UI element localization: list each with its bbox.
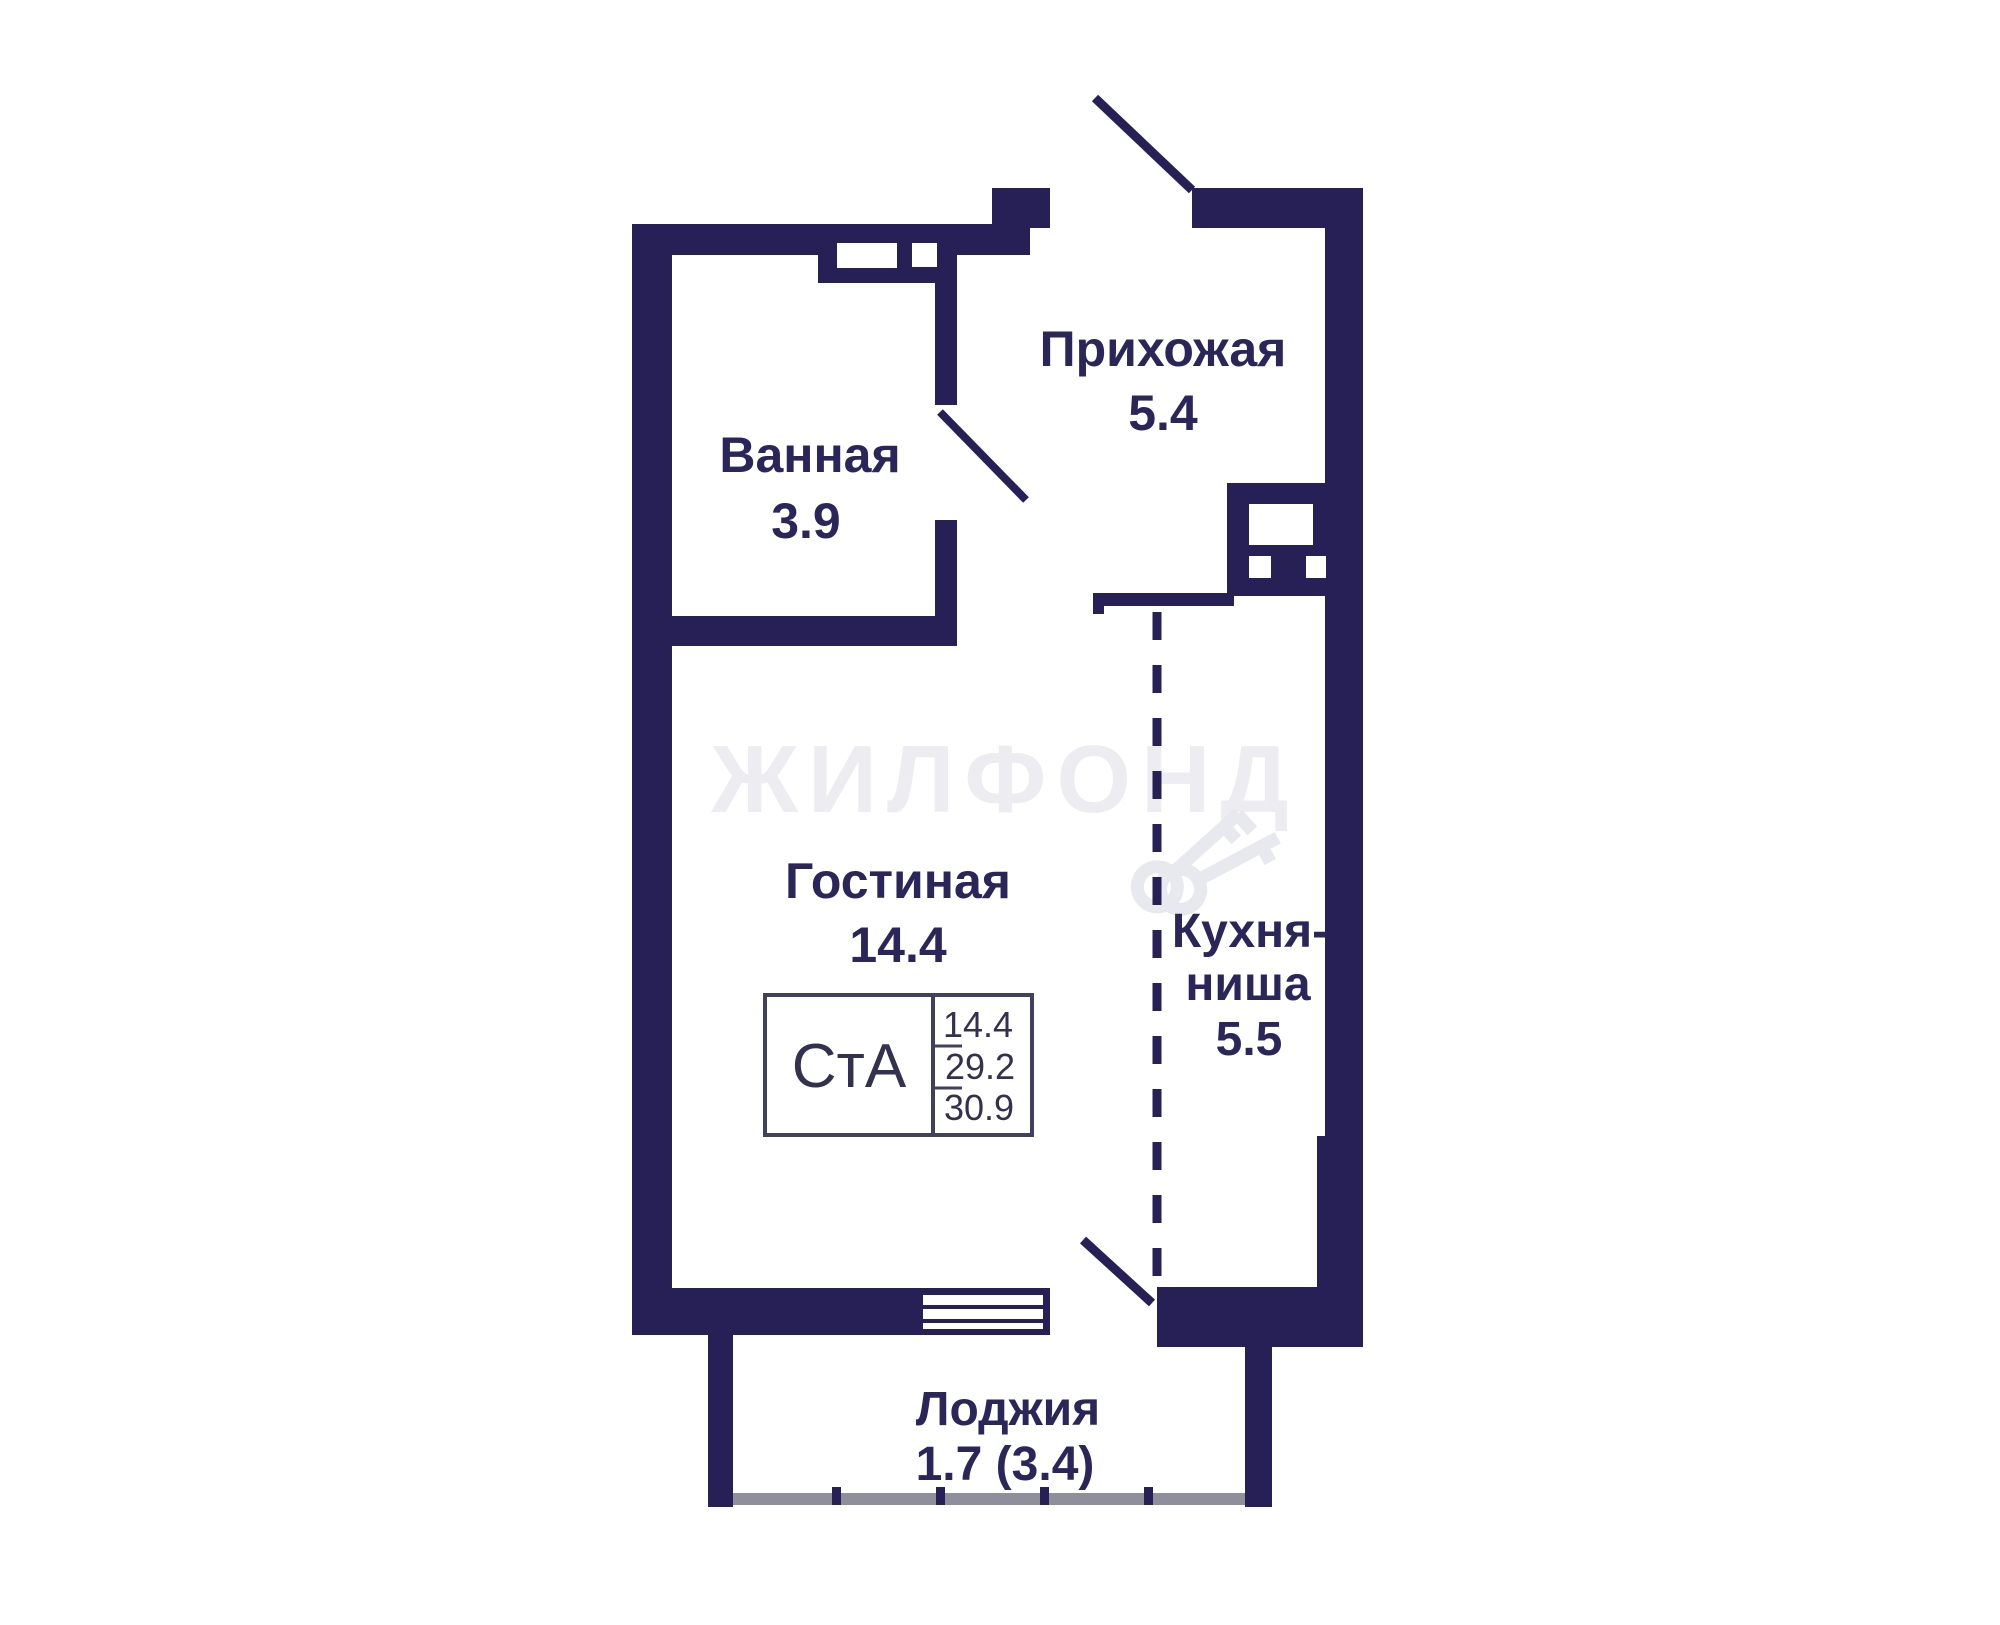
wall-loggia-right [1245,1347,1272,1507]
wall-right-middle [1325,596,1363,1136]
washer-square-left [1249,556,1271,578]
wall-bathroom-right-lower [935,520,957,616]
wall-divider-thin [1093,593,1234,606]
window-slat [923,1309,1043,1319]
wall-bathroom-right-upper [935,283,957,405]
railing-bar [733,1493,1245,1505]
living-room-label: Гостиная [785,853,1011,909]
loggia-door-swing [1083,1240,1152,1303]
vent-opening-large [837,243,897,268]
watermark-text: ЖИЛФОНД [710,726,1298,833]
kitchen-niche-label-line1: Кухня- [1172,905,1328,958]
bathroom-door-swing [940,412,1026,500]
stamp-living-area: 14.4 [943,1004,1013,1045]
wall-bathroom-bottom [632,616,957,646]
loggia-area: 1.7 (3.4) [916,1438,1095,1491]
kitchen-niche-label-line2: ниша [1185,958,1311,1011]
hallway-label: Прихожая [1040,321,1287,377]
washer-square-right [1306,556,1326,578]
wall-bottom-kitchen [1157,1287,1363,1347]
wall-loggia-left [708,1335,733,1507]
bathroom-area: 3.9 [771,493,841,549]
window-slat [923,1295,1043,1305]
hallway-area: 5.4 [1128,385,1198,441]
loggia-label: Лоджия [916,1383,1100,1436]
bathroom-label: Ванная [719,427,900,483]
apartment-stamp: СтА 14.4 29.2 30.9 [765,995,1032,1135]
vent-opening-small [912,243,937,267]
entrance-door-swing [1095,98,1192,190]
stamp-area-no-loggia: 29.2 [945,1046,1015,1087]
window-slat [923,1323,1043,1329]
washer-symbol [1249,504,1313,545]
floor-plan-page: ЖИЛФОНД [0,0,2000,1625]
wall-bottom-living [632,1288,916,1335]
wall-right-upper [1325,188,1363,483]
railing-tick [1144,1487,1153,1505]
railing-tick [832,1487,841,1505]
wall-left-outer [632,224,672,1335]
wall-entrance-step [992,188,1050,228]
kitchen-niche-area: 5.5 [1216,1013,1283,1066]
living-room-area: 14.4 [849,917,947,973]
stamp-apartment-type: СтА [792,1032,907,1101]
key-tooth-icon [1262,846,1270,862]
wall-divider-tick [1093,593,1104,614]
stamp-total-area: 30.9 [944,1087,1014,1128]
floor-plan-svg: ЖИЛФОНД [0,0,2000,1625]
key-tooth-icon [1224,827,1236,840]
window-living-room [916,1288,1050,1335]
